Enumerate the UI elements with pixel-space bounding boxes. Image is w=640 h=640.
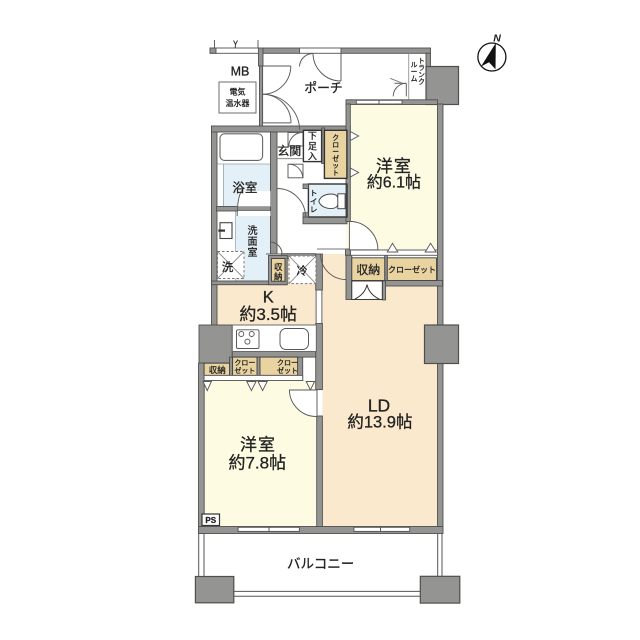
svg-text:電気: 電気 — [230, 87, 246, 97]
svg-text:ー: ー — [332, 149, 339, 156]
svg-text:ゼット: ゼット — [277, 366, 298, 375]
svg-text:約13.9帖: 約13.9帖 — [347, 412, 412, 431]
svg-text:ト: ト — [332, 170, 339, 177]
svg-text:足: 足 — [308, 142, 317, 152]
svg-text:玄関: 玄関 — [277, 143, 301, 158]
svg-text:ロ: ロ — [332, 142, 339, 149]
svg-text:ゼット: ゼット — [234, 366, 255, 375]
svg-text:入: 入 — [308, 152, 317, 162]
svg-text:収納: 収納 — [356, 263, 380, 277]
svg-text:約7.8帖: 約7.8帖 — [228, 454, 286, 473]
svg-text:ク: ク — [332, 134, 339, 142]
svg-text:温水器: 温水器 — [226, 98, 250, 108]
svg-text:面: 面 — [248, 237, 258, 248]
svg-text:ッ: ッ — [332, 163, 339, 170]
svg-text:K: K — [263, 289, 274, 307]
svg-text:PS: PS — [205, 516, 216, 525]
svg-text:洗: 洗 — [222, 261, 234, 274]
svg-text:下: 下 — [308, 131, 317, 141]
svg-text:クロー: クロー — [277, 359, 298, 367]
svg-text:約6.1帖: 約6.1帖 — [367, 174, 421, 192]
svg-text:浴室: 浴室 — [232, 180, 257, 195]
svg-text:洋室: 洋室 — [376, 157, 412, 176]
svg-text:冷: 冷 — [297, 265, 308, 278]
svg-text:ク: ク — [418, 78, 425, 86]
svg-text:約3.5帖: 約3.5帖 — [239, 305, 297, 324]
svg-text:ム: ム — [411, 75, 418, 83]
svg-text:ゼ: ゼ — [332, 154, 339, 163]
svg-text:クロー: クロー — [234, 359, 255, 367]
svg-text:N: N — [493, 33, 501, 45]
svg-text:室: 室 — [248, 246, 258, 259]
svg-text:収: 収 — [274, 262, 283, 272]
svg-text:収納: 収納 — [209, 365, 226, 375]
svg-text:バルコニー: バルコニー — [287, 557, 354, 572]
svg-text:ト: ト — [418, 58, 425, 65]
svg-text:納: 納 — [274, 272, 283, 282]
svg-text:ポーチ: ポーチ — [304, 81, 342, 96]
svg-text:MB: MB — [231, 65, 250, 79]
svg-text:ー: ー — [411, 69, 418, 76]
svg-text:レ: レ — [310, 205, 318, 214]
svg-text:洋室: 洋室 — [240, 435, 276, 454]
svg-text:ル: ル — [411, 62, 418, 69]
svg-text:ラ: ラ — [418, 64, 425, 72]
svg-text:洗: 洗 — [248, 225, 258, 237]
svg-text:ン: ン — [418, 72, 425, 79]
svg-text:クローゼット: クローゼット — [388, 265, 436, 275]
